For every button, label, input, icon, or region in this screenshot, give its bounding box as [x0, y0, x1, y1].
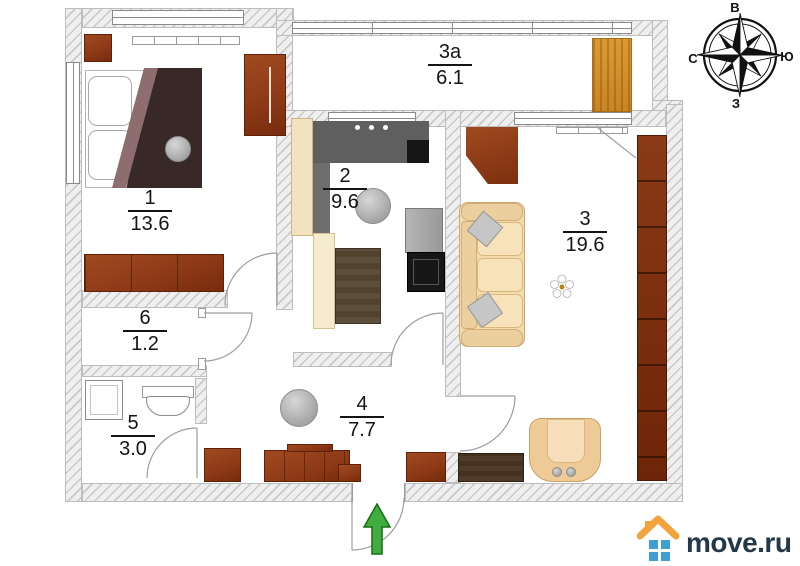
sofa-cushion	[477, 258, 523, 292]
wall-bottom-right	[405, 483, 683, 502]
room-number: 3	[563, 209, 607, 233]
logo-text[interactable]: move.ru	[686, 527, 791, 559]
tv-stand	[458, 453, 524, 482]
fridge	[405, 208, 443, 253]
entrance-arrow-icon	[358, 500, 398, 558]
hallway-pouf	[280, 389, 318, 427]
room-number: 6	[123, 308, 167, 332]
corner-cabinet-living	[466, 127, 518, 184]
compass-letter-top: В	[730, 0, 739, 15]
wall-room6-bottom	[82, 365, 207, 377]
wall-kitchen-bottom	[293, 352, 392, 367]
room-area: 6.1	[410, 66, 490, 89]
window-sill-room1	[132, 36, 240, 45]
stove-burner	[355, 125, 360, 130]
room-label-6: 6 1.2	[105, 308, 185, 355]
wardrobe-handle	[269, 67, 271, 123]
wall-room1-bottom	[82, 290, 228, 308]
stove-burner	[383, 125, 388, 130]
room-number: 2	[323, 166, 367, 190]
dresser-bedroom	[84, 254, 224, 292]
floor-plan-page: 1 13.6 2 9.6 3 19.6 3а 6.1 4 7.7 5 3.0 6…	[0, 0, 800, 566]
room-label-5: 5 3.0	[93, 413, 173, 460]
compass-main-rays	[697, 13, 783, 97]
wall-bath-right	[195, 378, 207, 424]
oven	[407, 252, 445, 292]
room-number: 5	[111, 413, 155, 437]
window-balcony-top	[292, 22, 632, 34]
armchair-seat	[547, 419, 585, 463]
window-living	[514, 112, 632, 125]
room-label-2: 2 9.6	[305, 166, 385, 213]
kitchen-corner-appliance	[407, 140, 429, 163]
hallway-cabinet-right	[406, 452, 446, 482]
room-area: 3.0	[93, 437, 173, 460]
bed-cushion	[165, 136, 191, 162]
compass-letter-left: С	[688, 51, 698, 66]
room-area: 13.6	[110, 212, 190, 235]
corner-shelf	[84, 34, 112, 62]
room-area: 7.7	[322, 418, 402, 441]
wardrobe-living	[637, 135, 667, 481]
wall-room6-right-stub-bottom	[198, 358, 206, 370]
kitchen-table	[335, 248, 381, 324]
wardrobe-bedroom	[244, 54, 286, 136]
room-number: 4	[340, 394, 384, 418]
door-arc-room1	[225, 253, 277, 305]
window-sill-living	[556, 127, 628, 134]
kitchen-bench	[313, 233, 335, 329]
door-arc-kitchen	[391, 313, 443, 365]
shoe-cabinet-top	[287, 444, 333, 452]
oven-door-line	[413, 259, 439, 285]
window-room1-left	[66, 62, 80, 184]
balcony-cabinet	[592, 38, 632, 112]
hallway-cabinet-small	[204, 448, 241, 482]
compass-letter-right: Ю	[780, 49, 793, 64]
shower-tray	[90, 385, 118, 415]
room-label-4: 4 7.7	[322, 394, 402, 441]
wall-room6-right-stub-top	[198, 308, 206, 318]
compass-letter-bottom: З	[732, 96, 740, 111]
armchair-knob	[566, 467, 576, 477]
room-number: 3а	[428, 42, 472, 66]
compass-rose-icon: В С Ю З	[684, 0, 796, 112]
hallway-low-strip	[338, 464, 361, 482]
room-area: 19.6	[545, 233, 625, 256]
room-label-3a: 3а 6.1	[410, 42, 490, 89]
bed-pillow	[88, 76, 132, 126]
door-arc-room6	[204, 313, 252, 361]
wall-bottom-left	[82, 483, 352, 502]
room-area: 9.6	[305, 190, 385, 213]
room-area: 1.2	[105, 332, 185, 355]
window-room1-top	[112, 10, 244, 25]
sofa-armrest	[461, 329, 523, 347]
room-label-1: 1 13.6	[110, 188, 190, 235]
room-number: 1	[128, 188, 172, 212]
armchair-knob	[552, 467, 562, 477]
room-label-3: 3 19.6	[545, 209, 625, 256]
house-logo-icon[interactable]	[637, 514, 687, 562]
armchair	[529, 418, 601, 482]
stove-burner	[369, 125, 374, 130]
door-arc-living	[460, 396, 515, 451]
wall-right	[666, 104, 683, 502]
chandelier-icon	[549, 274, 575, 300]
